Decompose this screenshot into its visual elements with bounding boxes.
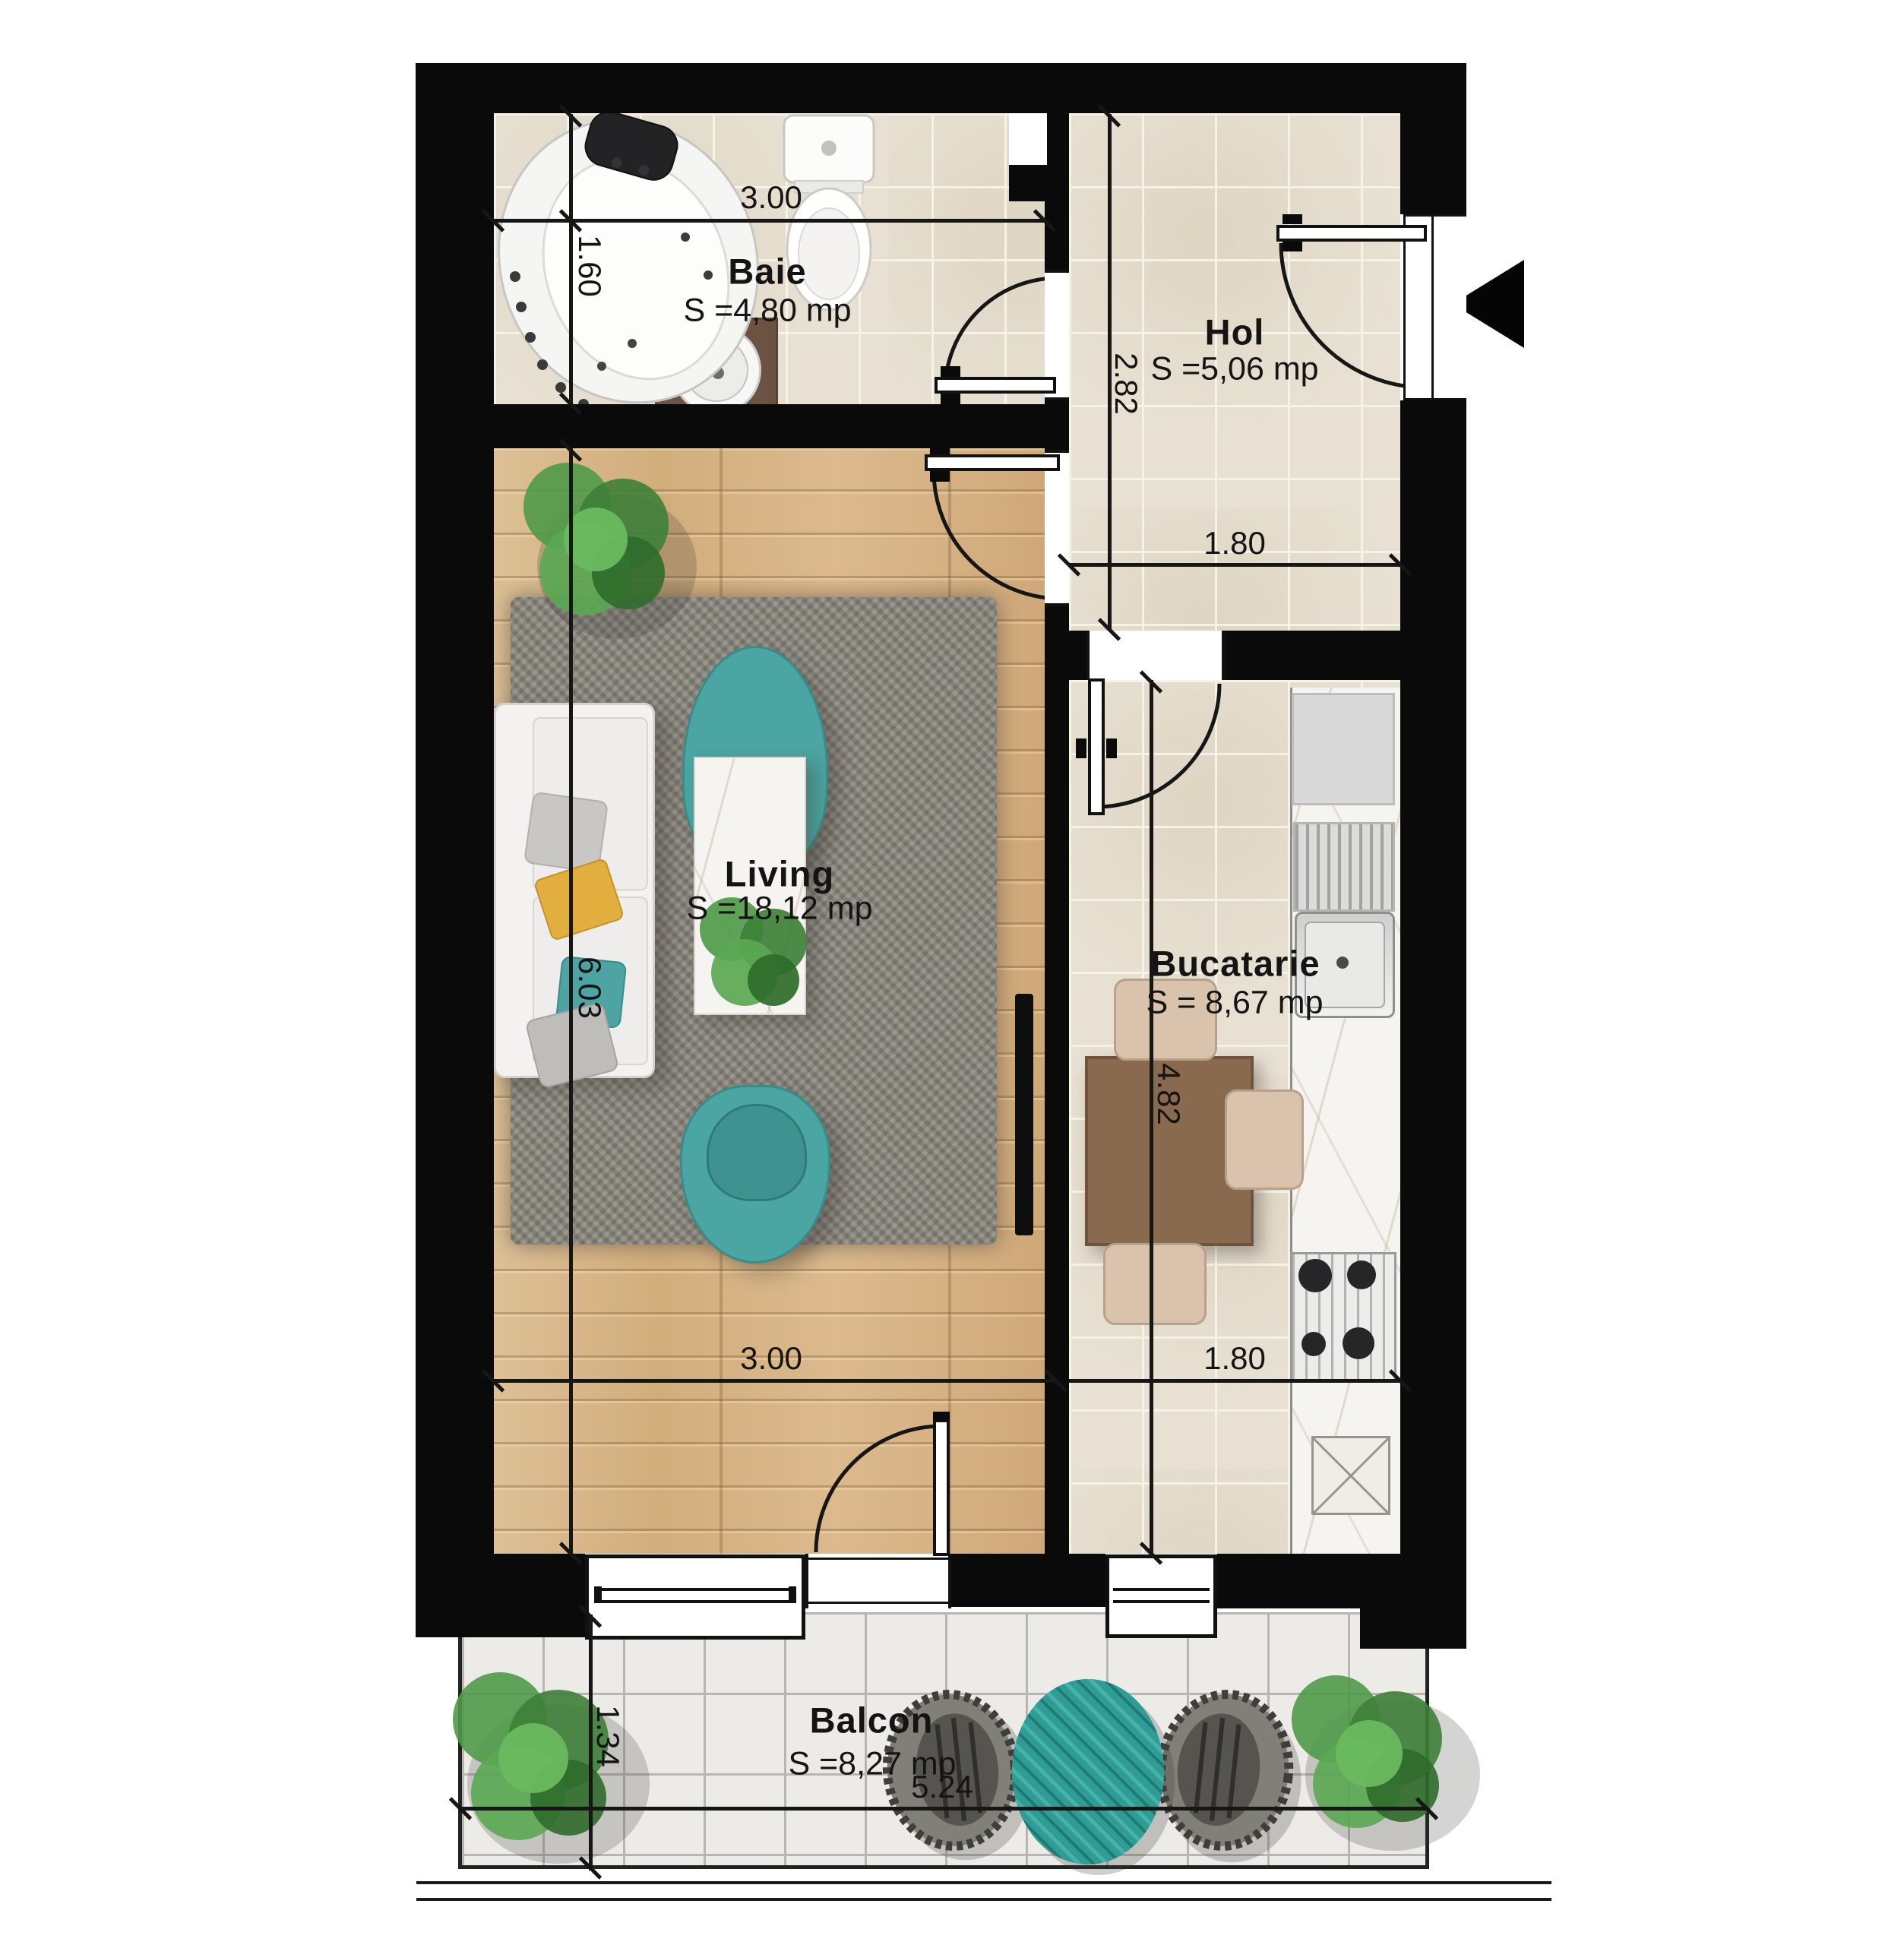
living-window-glass	[594, 1588, 796, 1591]
kitchen-door-hinge	[1106, 738, 1117, 758]
entrance-door-hinge	[1283, 214, 1302, 224]
baie-door-arc	[945, 278, 1058, 391]
dim-line-living-width	[493, 1379, 1056, 1383]
wall-central-mid	[1045, 400, 1069, 450]
living-door-hinge	[930, 444, 950, 454]
plant-balcony-left	[453, 1672, 650, 1864]
fixtures-overlay	[0, 0, 1904, 1945]
plant-living	[523, 463, 697, 639]
dim-label-living-height: 6.03	[571, 957, 608, 1019]
floor-plan: 3.00 1.60 2.82 1.80 6.03 4.82 3.00 1.80 …	[0, 0, 1904, 1945]
wicker-chair-right	[1152, 1688, 1310, 1869]
living-door-leaf	[925, 454, 1060, 471]
wall-bottom-left	[416, 1554, 585, 1637]
balcony-table	[1012, 1679, 1175, 1875]
balcony-door-arc	[816, 1426, 942, 1552]
living-window-mullion	[789, 1586, 796, 1603]
dim-line-kitchen-width	[1069, 1379, 1400, 1383]
wall-central-lower	[1045, 606, 1069, 1554]
wall-right-upper	[1400, 113, 1466, 214]
balcony-door-opening	[805, 1554, 951, 1608]
balcony-door-threshold	[808, 1558, 948, 1560]
balcony-door-threshold	[808, 1602, 948, 1604]
wall-hol-kitchen-left	[1045, 631, 1086, 680]
dim-label-baie-width: 3.00	[740, 179, 802, 216]
living-door-arc	[934, 471, 1061, 599]
kitchen-window	[1105, 1554, 1217, 1638]
balcony-door-hinge	[933, 1412, 950, 1421]
kitchen-window-glass	[1113, 1588, 1210, 1591]
wall-bottom-mid	[950, 1554, 1105, 1607]
shaft-niche	[1009, 113, 1047, 165]
kitchen-window-glass	[1113, 1600, 1210, 1603]
dim-label-kitchen-width: 1.80	[1203, 1340, 1266, 1377]
living-window	[585, 1554, 805, 1640]
wall-hol-kitchen-right	[1225, 631, 1400, 680]
wall-bottom-corner-block	[1360, 1554, 1466, 1649]
living-window-glass	[594, 1600, 796, 1603]
dim-label-living-width: 3.00	[740, 1340, 802, 1377]
dim-label-baie-height: 1.60	[571, 235, 608, 297]
living-label: Living	[725, 853, 834, 895]
baie-door-hinge	[941, 394, 960, 404]
balcon-area: S =8,27 mp	[788, 1746, 956, 1783]
wall-top	[416, 63, 1466, 113]
dim-line-baie-width	[493, 219, 1045, 223]
kitchen-door-opening	[1086, 631, 1225, 680]
dim-line-balcon-width	[460, 1807, 1427, 1811]
living-area: S =18,12 mp	[686, 890, 872, 928]
baie-area: S =4,80 mp	[683, 293, 851, 330]
dim-label-hol-width: 1.80	[1203, 525, 1266, 561]
entrance-door-leaf	[1276, 225, 1427, 242]
entrance-door-opening	[1403, 214, 1466, 400]
baie-label: Baie	[728, 251, 806, 293]
hol-area: S =5,06 mp	[1150, 351, 1318, 388]
living-door-opening	[1045, 450, 1069, 606]
baie-door-hinge	[941, 366, 960, 377]
entrance-frame-line	[1431, 214, 1434, 400]
kitchen-door-hinge	[1076, 738, 1086, 758]
dim-label-kitchen-height: 4.82	[1150, 1063, 1187, 1125]
balcon-label: Balcon	[810, 1700, 934, 1741]
bucatarie-area: S = 8,67 mp	[1146, 985, 1323, 1022]
wall-left	[416, 63, 494, 1607]
hol-label: Hol	[1205, 312, 1265, 353]
wall-right-lower	[1400, 400, 1466, 1615]
plant-balcony-right	[1292, 1675, 1480, 1851]
bucatarie-label: Bucatarie	[1150, 943, 1320, 985]
shaft-stub	[1009, 165, 1047, 201]
dim-label-hol-height: 2.82	[1108, 353, 1144, 415]
living-window-mullion	[594, 1586, 602, 1603]
entrance-door-hinge	[1283, 242, 1302, 251]
dim-label-balcon-height: 1.34	[590, 1705, 626, 1767]
wall-central-upper	[1045, 113, 1069, 270]
dim-line-hol-width	[1069, 563, 1400, 567]
baie-door-leaf	[935, 377, 1056, 394]
living-door-hinge	[930, 471, 950, 482]
balcony-door-leaf	[933, 1419, 950, 1556]
kitchen-door-leaf	[1088, 678, 1105, 815]
